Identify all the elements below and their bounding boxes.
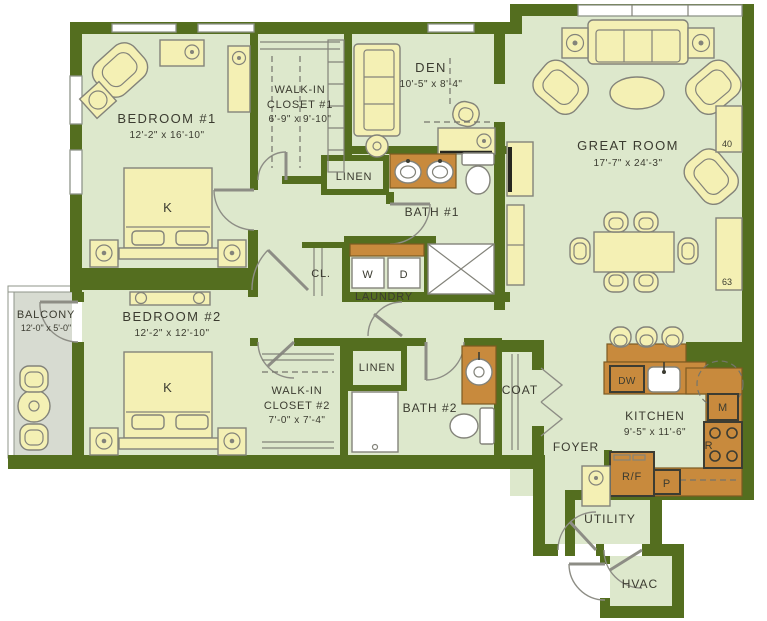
bath1-label: BATH #1 (405, 205, 460, 219)
balcony-chair-2 (20, 424, 48, 450)
range-label: R (705, 440, 714, 452)
window-bedroom1-b (198, 24, 254, 32)
bath2-label: BATH #2 (403, 401, 458, 415)
great-room-dims: 17'-7" x 24'-3" (593, 158, 662, 169)
washer-label: W (362, 269, 373, 281)
headboard-2 (119, 438, 219, 449)
kitchen-label: KITCHEN (625, 409, 685, 423)
floor-plan: BEDROOM #1 12'-2" x 16'-10" WALK-IN CLOS… (0, 0, 767, 621)
wic1-dims: 6'-9" x 9'-10" (269, 114, 332, 125)
great-room-label: GREAT ROOM (577, 138, 679, 153)
balcony-table (18, 390, 50, 422)
toilet2-tank (480, 408, 494, 444)
king-bed-2-label: K (163, 380, 173, 395)
floor-plan-svg: BEDROOM #1 12'-2" x 16'-10" WALK-IN CLOS… (0, 0, 767, 621)
foyer-label: FOYER (553, 440, 599, 454)
bedroom1-desk (160, 40, 204, 66)
laundry-counter (350, 244, 424, 256)
dryer-label: D (400, 269, 409, 281)
bedroom2-dims: 12'-2" x 12'-10" (134, 328, 209, 339)
den-side-table (366, 135, 388, 157)
pantry-label: P (663, 478, 671, 490)
kitchen-dims: 9'-5" x 11'-6" (624, 427, 686, 438)
wic1-label-1: WALK-IN (274, 84, 325, 96)
tv-icon (508, 147, 512, 192)
balcony-furniture (18, 366, 50, 450)
bar-stools (610, 327, 683, 347)
balcony-dims: 12'-0" x 5'-0" (21, 323, 71, 333)
foyer-furniture (582, 466, 610, 506)
fridge-label: R/F (622, 471, 642, 483)
king-bed-1-label: K (163, 200, 173, 215)
window-bedroom1-a (112, 24, 176, 32)
wic2-label-2: CLOSET #2 (264, 400, 330, 412)
dw-label: DW (618, 376, 636, 387)
note-40: 40 (722, 139, 732, 149)
wic1-label-2: CLOSET #1 (267, 99, 333, 111)
toilet2-bowl (450, 414, 478, 438)
coffee-table (610, 77, 664, 109)
window-great-room (578, 5, 742, 16)
den-sofa (354, 44, 400, 136)
bedroom1-label: BEDROOM #1 (117, 111, 216, 126)
sofa (588, 20, 688, 64)
coat-label: COAT (502, 383, 538, 397)
wic2-dims: 7'-0" x 7'-4" (269, 415, 326, 426)
linen1-label: LINEN (336, 171, 372, 183)
bedroom2-label: BEDROOM #2 (122, 309, 221, 324)
microwave-label: M (718, 402, 728, 414)
toilet1-bowl (466, 166, 490, 194)
utility-label: UTILITY (584, 512, 636, 526)
wic2-label-1: WALK-IN (271, 385, 322, 397)
dining-table (594, 232, 674, 272)
kitchen-counter-corner (686, 368, 742, 394)
window-den (428, 24, 474, 32)
toilet1-tank (462, 153, 494, 165)
bath2-sink (466, 359, 492, 385)
den-label: DEN (415, 60, 447, 75)
balcony-chair-1 (20, 366, 48, 392)
den-desk (438, 128, 495, 154)
den-dims: 10'-5" x 8'-4" (400, 79, 463, 90)
bedroom1-dresser (228, 46, 250, 112)
shower2 (352, 392, 398, 452)
bath1-sink-left (395, 161, 421, 183)
note-63: 63 (722, 277, 732, 287)
window-bedroom1-west-b (70, 150, 82, 194)
headboard-1 (119, 248, 219, 259)
cl-label: CL. (311, 268, 331, 280)
bath1-sink-right (427, 161, 453, 183)
foyer-table (582, 466, 610, 506)
balcony-rail-top (8, 286, 74, 292)
linen2-label: LINEN (359, 362, 395, 374)
laundry-label: LAUNDRY (355, 291, 413, 303)
bedroom1-dims: 12'-2" x 16'-10" (129, 130, 204, 141)
balcony-rail-left (8, 286, 14, 458)
hvac-label: HVAC (622, 577, 658, 591)
balcony-label: BALCONY (17, 309, 75, 321)
